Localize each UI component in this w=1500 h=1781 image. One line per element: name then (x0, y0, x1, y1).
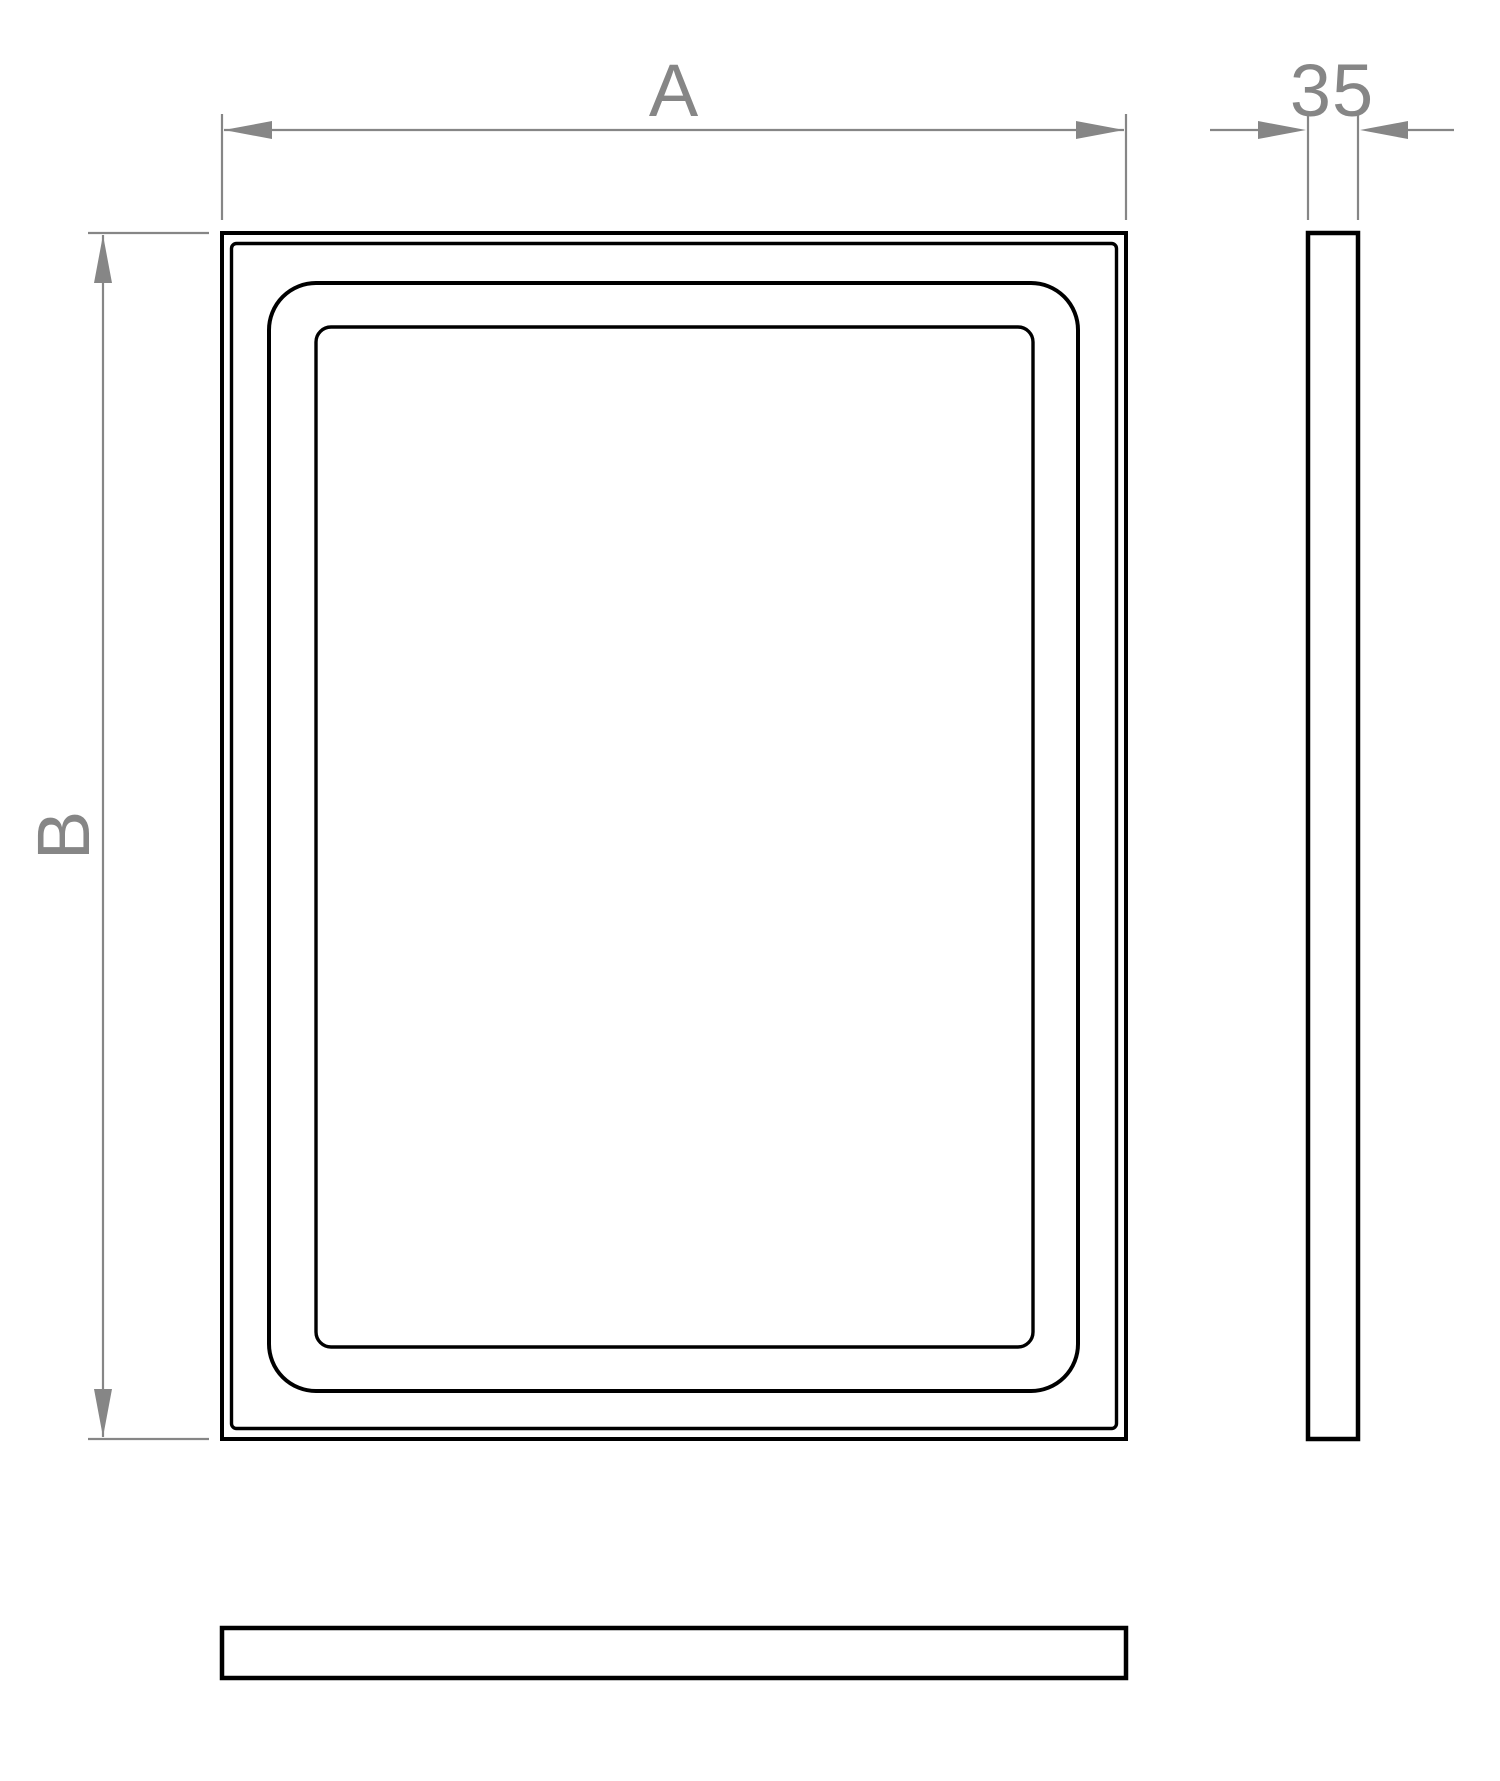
height-arrowhead-bottom (94, 1389, 112, 1437)
bottom-outline (222, 1628, 1126, 1678)
side-view (1308, 233, 1358, 1439)
front-view (222, 233, 1126, 1439)
height-dimension-label: B (22, 810, 105, 860)
drawing-canvas: A B 35 (0, 0, 1500, 1781)
dimension-depth: 35 (1210, 49, 1454, 220)
dimension-width: A (222, 49, 1126, 220)
depth-dimension-label: 35 (1290, 49, 1374, 132)
dimension-height: B (22, 233, 209, 1439)
width-arrowhead-left (224, 121, 272, 139)
side-outline (1308, 233, 1358, 1439)
width-dimension-label: A (649, 49, 699, 132)
bottom-view (222, 1628, 1126, 1678)
technical-drawing: A B 35 (0, 0, 1500, 1781)
front-outer-edge-line (222, 233, 1126, 1439)
height-arrowhead-top (94, 235, 112, 283)
width-arrowhead-right (1076, 121, 1124, 139)
